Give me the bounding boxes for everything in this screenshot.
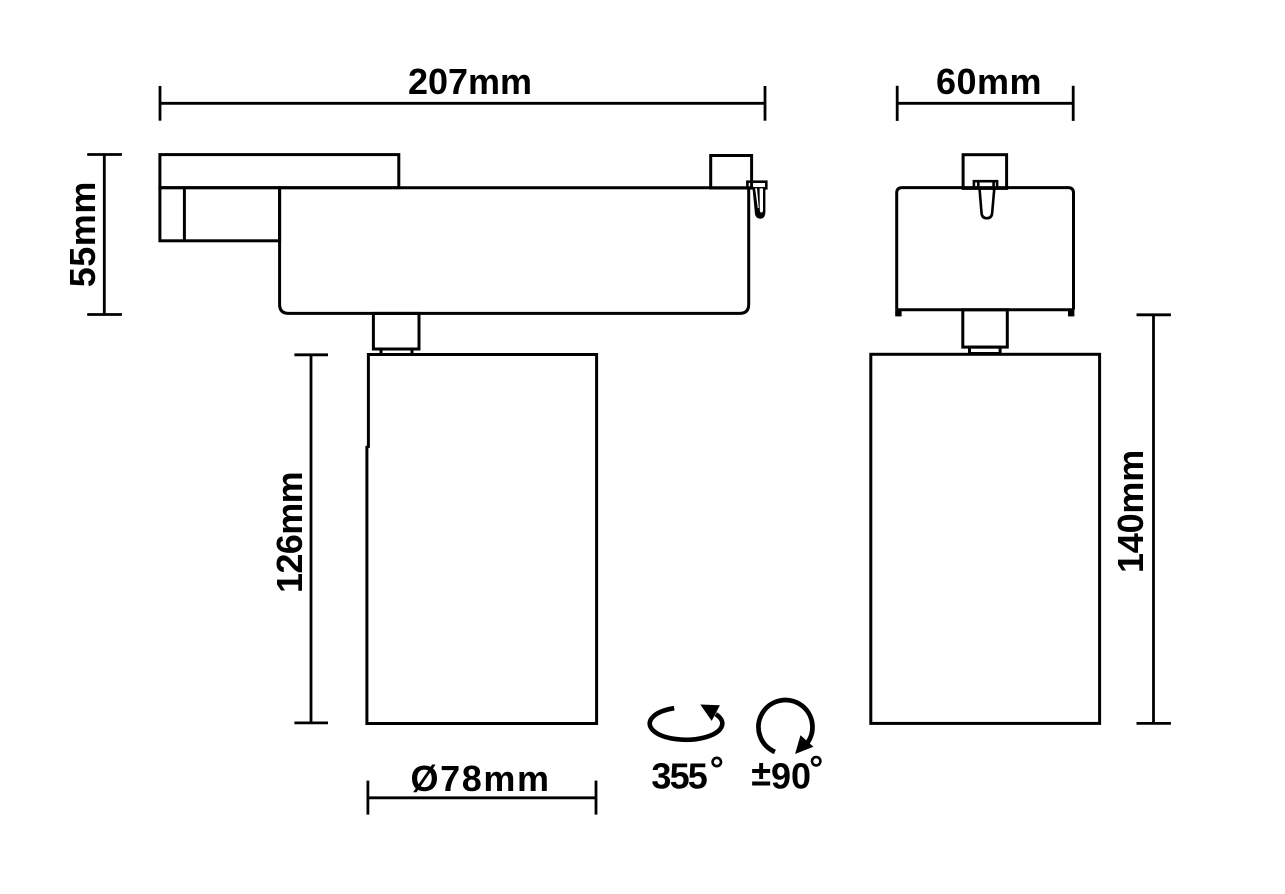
- svg-text:Ø78mm: Ø78mm: [411, 758, 551, 799]
- svg-text:207mm: 207mm: [408, 61, 532, 102]
- svg-text:126mm: 126mm: [269, 472, 310, 593]
- svg-text:355: 355: [651, 756, 707, 797]
- svg-text:140mm: 140mm: [1110, 450, 1151, 573]
- svg-text:60mm: 60mm: [936, 61, 1042, 102]
- svg-text:55mm: 55mm: [62, 181, 103, 287]
- svg-text:±90: ±90: [751, 752, 811, 796]
